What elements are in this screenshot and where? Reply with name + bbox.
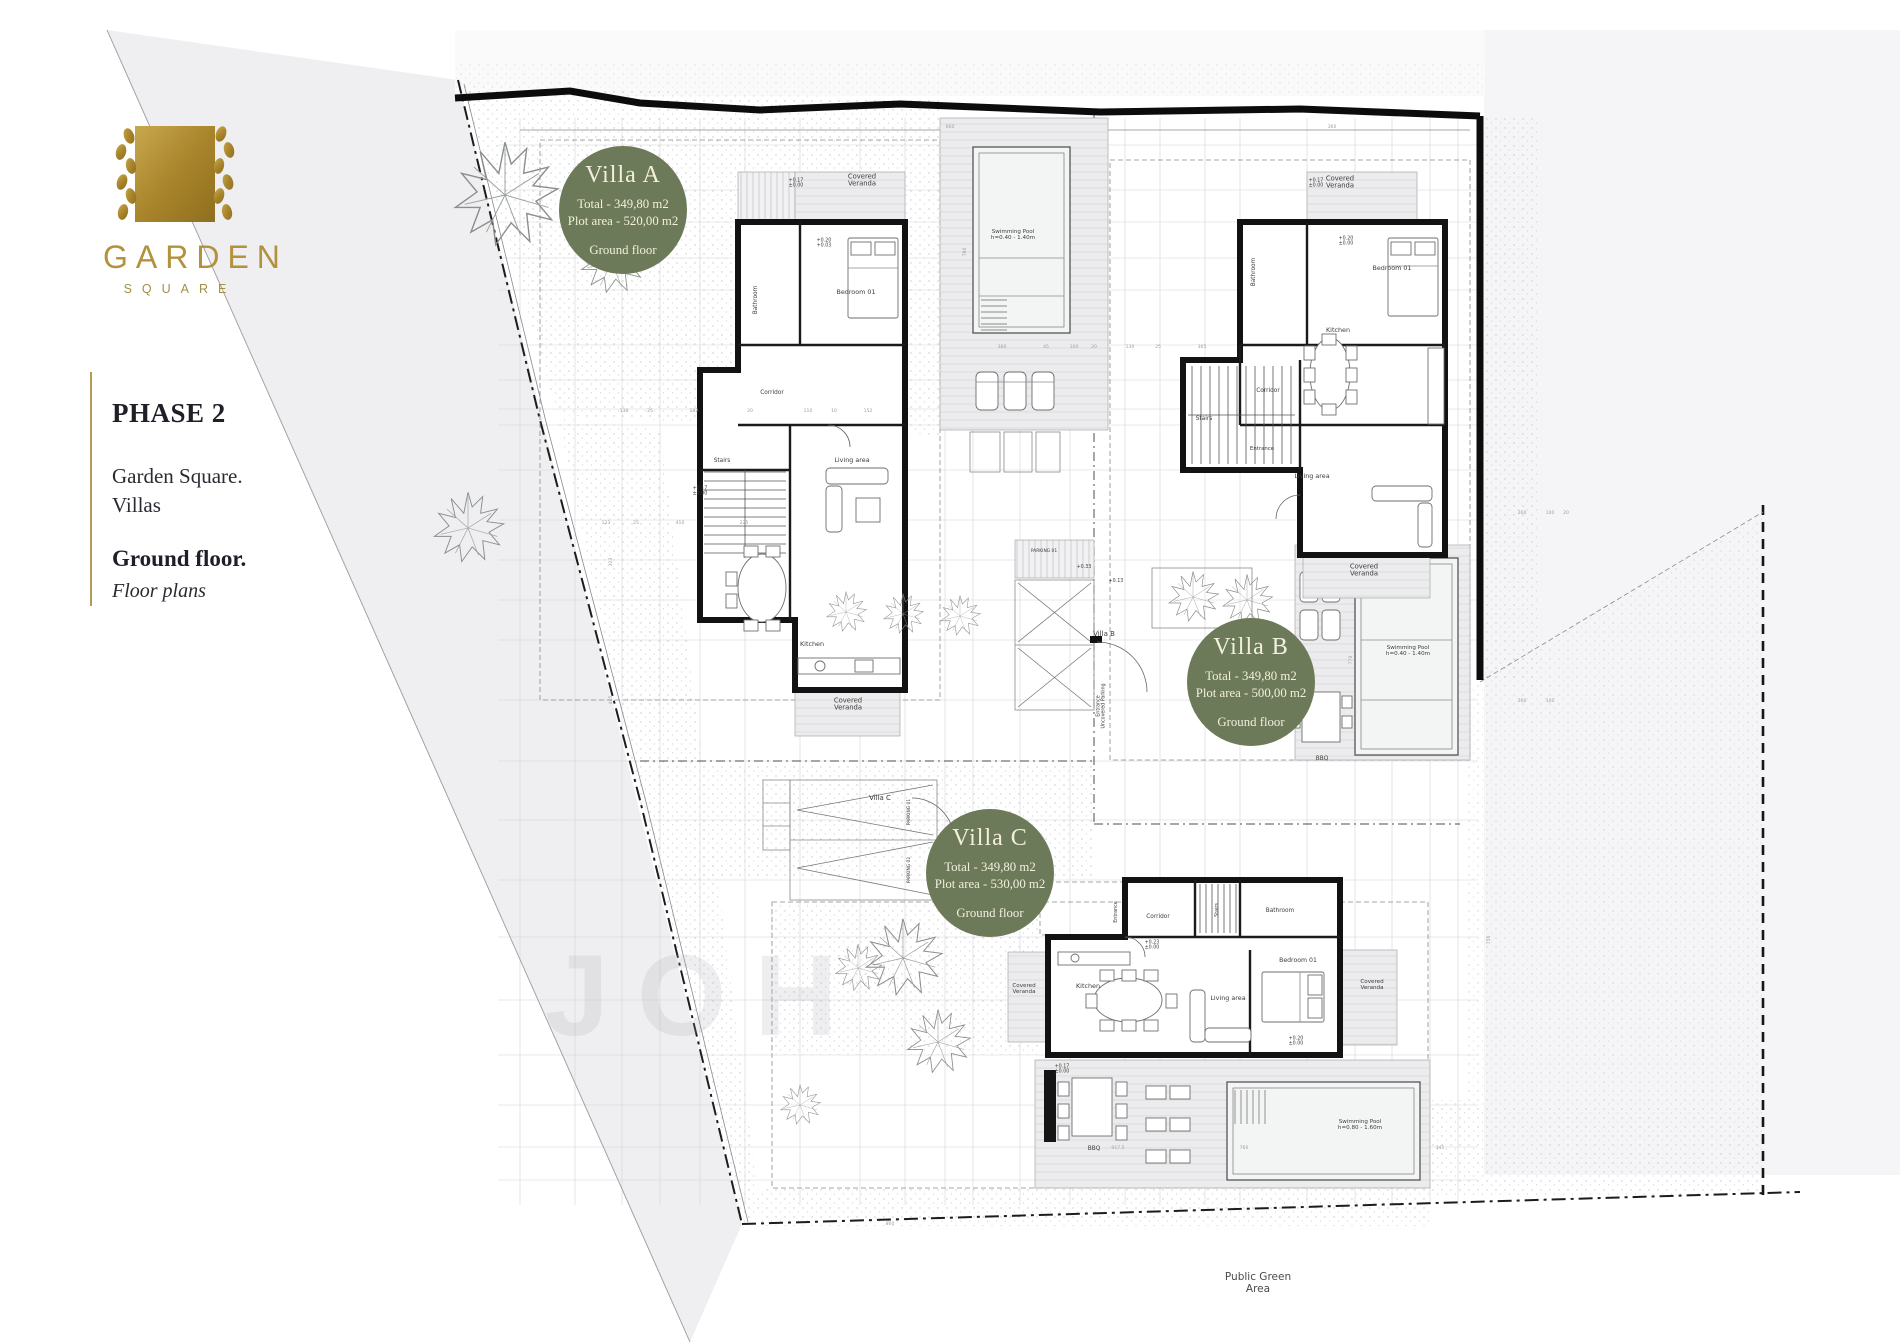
plan-label: +0.13 xyxy=(1109,578,1124,584)
plan-label: +0.17±0.00 xyxy=(1055,1063,1070,1074)
dimension-label: 780 xyxy=(962,248,968,257)
pergola-walk xyxy=(970,432,1060,472)
plan-label: Swimming Poolh=0.80 - 1.60m xyxy=(1338,1119,1382,1131)
plan-label: Living area xyxy=(1294,472,1329,480)
dimension-label: 25 xyxy=(1155,344,1161,350)
villa-b-floor-label: Ground floor xyxy=(1217,715,1284,730)
plan-label: +0.20±0.00 xyxy=(1289,1035,1304,1046)
villa-b-badge: Villa BTotal - 349,80 m2Plot area - 500,… xyxy=(1187,618,1315,746)
plan-label: Villa B xyxy=(1093,630,1115,638)
plan-label: Entrance xyxy=(1113,901,1119,923)
plan-label: +0.33 xyxy=(1077,564,1092,570)
plan-label: Living area xyxy=(1210,994,1245,1002)
dining-table-villa-b xyxy=(1304,334,1357,415)
villa-c-total-area: Total - 349,80 m2 xyxy=(944,859,1036,876)
sofa-villa-a xyxy=(826,468,888,532)
gate-villa-b xyxy=(1090,636,1147,692)
villa-b-plan xyxy=(1183,172,1445,598)
plan-label: CoveredVeranda xyxy=(1360,979,1384,991)
plan-label: +0.20+0.03 xyxy=(817,237,832,248)
villa-b-total-area: Total - 349,80 m2 xyxy=(1205,668,1297,685)
plan-label: Bedroom 01 xyxy=(836,288,875,296)
plan-label: Corridor xyxy=(1256,388,1280,394)
villa-a-floor-label: Ground floor xyxy=(589,243,656,258)
dimension-label: 100 xyxy=(1546,698,1555,704)
plan-label: Public GreenArea xyxy=(1225,1271,1291,1295)
dimension-label: 20 xyxy=(1563,510,1569,516)
plan-label: EntranceUncovered Parking xyxy=(1095,683,1106,728)
plan-label: Bathroom xyxy=(1266,908,1295,914)
plan-label: Bedroom 01 xyxy=(1279,957,1317,964)
dimension-label: 360 xyxy=(1328,124,1337,130)
villa-c-plan xyxy=(1008,880,1397,1055)
dimension-label: 360 xyxy=(998,344,1007,350)
plan-label: Kitchen xyxy=(800,640,824,648)
plan-label: Bathroom xyxy=(1251,257,1257,286)
dimension-label: 100 xyxy=(1546,510,1555,516)
bbq-grill-villa-c xyxy=(1044,1070,1056,1142)
bed-villa-a xyxy=(848,238,898,318)
dimension-label: 20 xyxy=(1091,344,1097,350)
dimension-label: 182 xyxy=(690,408,699,414)
swimming-pool-villa-c xyxy=(1227,1082,1420,1180)
dimension-label: 25 xyxy=(647,408,653,414)
dimension-label: 917.5 xyxy=(1111,1145,1124,1151)
villa-c-plot-area: Plot area - 530,00 m2 xyxy=(935,876,1046,893)
brand-subname: SQUARE xyxy=(95,282,255,296)
dimension-label: 10 xyxy=(831,408,837,414)
brand-name: GARDEN xyxy=(95,239,255,276)
plan-label: Stairs xyxy=(1196,416,1213,422)
tree-icon xyxy=(781,1085,821,1125)
villa-b-villa-title: Villa B xyxy=(1213,634,1289,661)
site-plan-canvas: CoveredVerandaBedroom 01BathroomCorridor… xyxy=(0,0,1900,1342)
plan-label: BBQ xyxy=(1088,1146,1101,1152)
villa-a-total-area: Total - 349,80 m2 xyxy=(577,196,669,213)
plan-label: Living area xyxy=(834,456,869,464)
plan-label: Corridor xyxy=(1146,914,1170,920)
plan-label: Stairs xyxy=(1214,903,1220,917)
plan-label: CoveredVeranda xyxy=(1326,174,1354,189)
dimension-label: 130 xyxy=(1126,344,1135,350)
dimension-label: 660 xyxy=(946,124,955,130)
plan-label: Bedroom 01 xyxy=(1372,264,1411,272)
dimension-label: 20 xyxy=(747,408,753,414)
plan-label: Kitchen xyxy=(1076,982,1100,990)
garden-square-logo-icon xyxy=(95,122,255,230)
plan-label: +0.17±0.00 xyxy=(1309,177,1324,188)
tree-icon xyxy=(941,596,981,636)
kitchen-counter-villa-b xyxy=(1428,348,1444,424)
dimension-label: 110 xyxy=(804,408,813,414)
dimension-label: 760 xyxy=(1240,1145,1249,1151)
bed-villa-c xyxy=(1262,972,1324,1022)
plan-label: CoveredVeranda xyxy=(1012,983,1036,995)
dimension-label: 410 xyxy=(676,520,685,526)
floor-subtitle: Floor plans xyxy=(112,580,206,603)
villa-c-floor-label: Ground floor xyxy=(956,906,1023,921)
brand-logo: GARDEN SQUARE xyxy=(95,122,255,296)
dimension-label: 123 xyxy=(602,520,611,526)
plan-label: PARKING 01 xyxy=(906,799,912,825)
plan-label: Corridor xyxy=(760,390,784,396)
bbq-table-villa-c xyxy=(1058,1078,1127,1140)
dimension-label: 260 xyxy=(1518,510,1527,516)
sidebar-divider xyxy=(90,372,92,606)
plan-label: BBQ xyxy=(1316,756,1329,762)
plan-label: PARKING 01 xyxy=(1031,548,1057,554)
plan-label: CoveredVeranda xyxy=(1350,562,1378,577)
dimension-label: 341 xyxy=(1436,1145,1445,1151)
plan-label: +0.20±0.00 xyxy=(1339,235,1354,246)
dimension-label: 445 xyxy=(608,696,614,705)
plan-label: Swimming Poolh=0.40 - 1.40m xyxy=(1386,645,1430,657)
dimension-label: 323 xyxy=(608,558,614,567)
plan-label: Entrance xyxy=(1250,446,1275,452)
plan-label: +0.17±0.00 xyxy=(693,485,708,496)
plan-label: CoveredVeranda xyxy=(848,172,876,187)
dimension-label: 225 xyxy=(740,520,749,526)
plan-label: CoveredVeranda xyxy=(834,696,862,711)
dimension-label: 45 xyxy=(1043,344,1049,350)
dimension-label: 260 xyxy=(1518,698,1527,704)
dimension-label: 25 xyxy=(633,520,639,526)
project-line2: Villas xyxy=(112,493,161,517)
floor-title: Ground floor. xyxy=(112,546,246,572)
bed-villa-b xyxy=(1388,238,1438,316)
sun-loungers-villa-a xyxy=(976,372,1054,410)
plan-label: Bathroom xyxy=(753,285,759,314)
villa-a-villa-title: Villa A xyxy=(585,162,661,189)
project-line1: Garden Square. xyxy=(112,464,243,488)
dimension-label: 860 xyxy=(886,1221,895,1227)
dimension-label: 750 xyxy=(1486,936,1492,945)
villa-c-badge: Villa CTotal - 349,80 m2Plot area - 530,… xyxy=(926,809,1054,937)
dimension-label: 770 xyxy=(1348,656,1354,665)
tree-icon xyxy=(1223,575,1273,625)
watermark: JOH xyxy=(545,930,865,1062)
dimension-label: 100 xyxy=(1070,344,1079,350)
dimension-label: 130 xyxy=(620,408,629,414)
villa-a-plot-area: Plot area - 520,00 m2 xyxy=(568,213,679,230)
plan-label: Kitchen xyxy=(1326,326,1350,334)
villa-a-badge: Villa ATotal - 349,80 m2Plot area - 520,… xyxy=(559,146,687,274)
project-name: Garden Square. Villas xyxy=(112,462,243,521)
kitchen-counter-villa-c xyxy=(1058,952,1130,965)
dimension-label: 152 xyxy=(864,408,873,414)
dimension-label: 365 xyxy=(1198,344,1207,350)
plan-label: PARKING 02 xyxy=(906,857,912,883)
tree-icon xyxy=(1169,572,1219,622)
villa-b-plot-area: Plot area - 500,00 m2 xyxy=(1196,685,1307,702)
villa-c-villa-title: Villa C xyxy=(952,825,1028,852)
plan-label: Swimming Poolh=0.40 - 1.40m xyxy=(991,229,1035,241)
phase-title: PHASE 2 xyxy=(112,398,226,429)
plan-label: +0.23±0.00 xyxy=(1145,939,1160,950)
plan-label: Villa C xyxy=(869,794,891,802)
brochure-page: CoveredVerandaBedroom 01BathroomCorridor… xyxy=(0,0,1900,1342)
plan-label: +0.17±0.00 xyxy=(789,177,804,188)
kitchen-counter-villa-a xyxy=(798,658,900,674)
plan-label: Stairs xyxy=(714,458,731,464)
